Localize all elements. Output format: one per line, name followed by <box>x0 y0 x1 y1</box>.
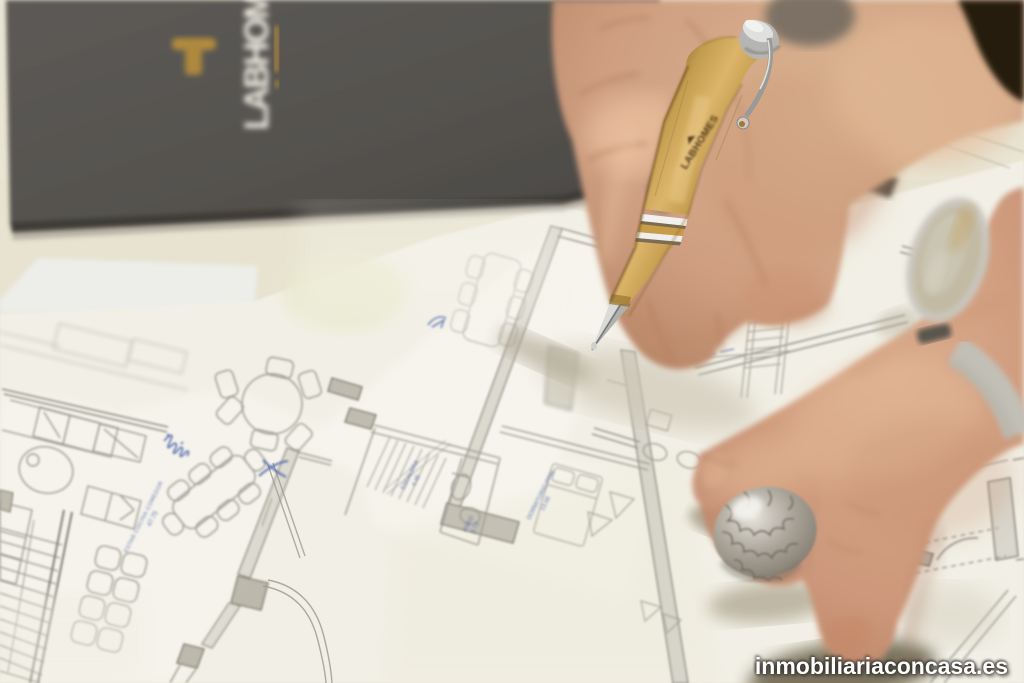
svg-text:LABHOMES: LABHOMES <box>238 0 276 130</box>
